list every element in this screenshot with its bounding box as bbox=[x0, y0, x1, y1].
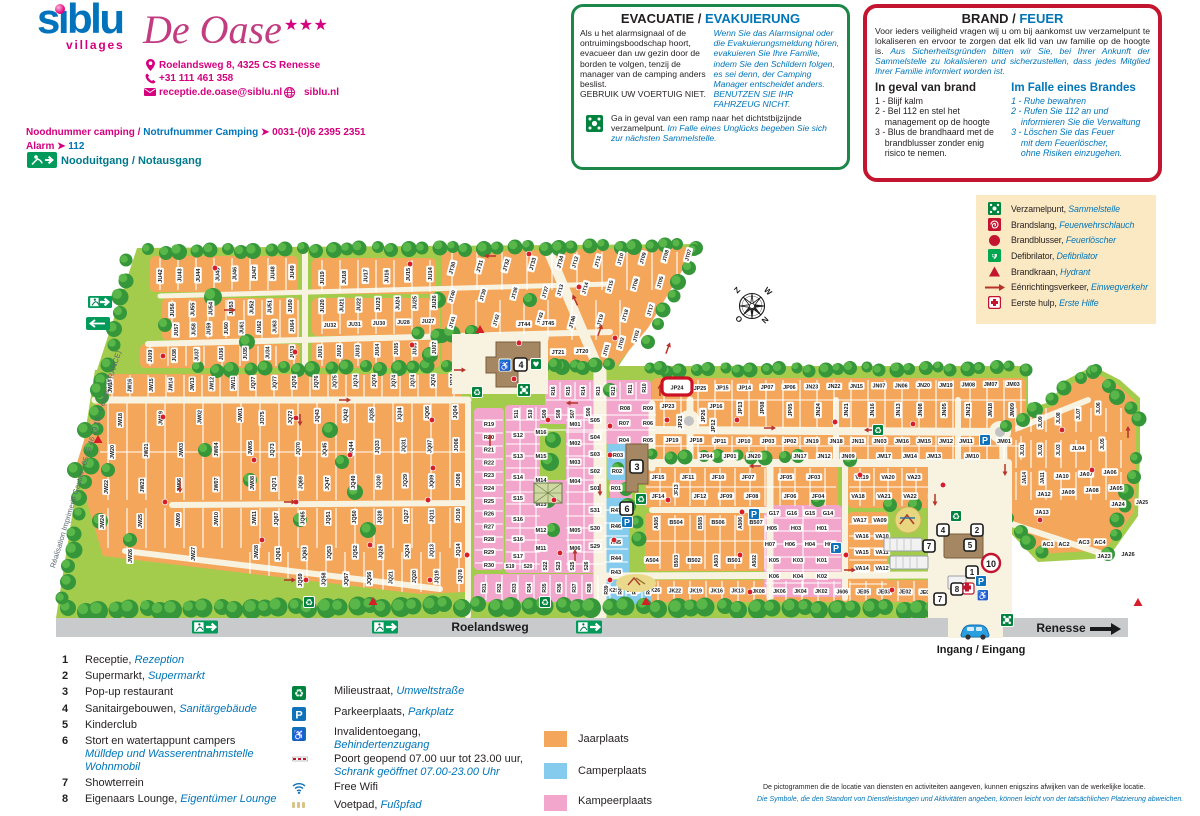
svg-text:JQ49: JQ49 bbox=[351, 476, 357, 489]
svg-text:JF09: JF09 bbox=[720, 494, 733, 500]
svg-text:JN11: JN11 bbox=[851, 439, 864, 445]
svg-text:JN21: JN21 bbox=[966, 403, 972, 416]
svg-text:R19: R19 bbox=[484, 422, 494, 428]
svg-text:JP18: JP18 bbox=[689, 438, 702, 444]
svg-text:♿: ♿ bbox=[499, 360, 510, 371]
svg-text:JW08: JW08 bbox=[250, 476, 256, 490]
svg-text:JQ43: JQ43 bbox=[315, 409, 321, 422]
svg-text:6: 6 bbox=[624, 504, 629, 514]
svg-text:JQ57: JQ57 bbox=[344, 573, 350, 586]
svg-text:10: 10 bbox=[986, 559, 996, 569]
svg-text:JK08: JK08 bbox=[752, 589, 765, 595]
svg-text:JQ47: JQ47 bbox=[325, 477, 331, 490]
svg-text:JA08: JA08 bbox=[1085, 488, 1098, 494]
svg-text:JP02: JP02 bbox=[783, 439, 796, 445]
svg-text:JN19: JN19 bbox=[805, 439, 818, 445]
svg-text:JL01: JL01 bbox=[1020, 444, 1026, 456]
svg-text:JT20: JT20 bbox=[576, 349, 589, 355]
svg-text:JW12: JW12 bbox=[210, 377, 216, 391]
svg-text:JK06: JK06 bbox=[773, 589, 786, 595]
svg-text:JP03: JP03 bbox=[761, 439, 774, 445]
svg-text:G17: G17 bbox=[769, 511, 780, 517]
svg-text:♻: ♻ bbox=[294, 688, 304, 700]
svg-text:JN17: JN17 bbox=[793, 454, 806, 460]
svg-text:B501: B501 bbox=[727, 558, 740, 564]
svg-text:JU20: JU20 bbox=[320, 299, 326, 312]
svg-text:S11: S11 bbox=[514, 409, 520, 418]
svg-text:JU64: JU64 bbox=[290, 320, 296, 333]
svg-text:JU05: JU05 bbox=[394, 343, 400, 356]
svg-text:JM01: JM01 bbox=[997, 439, 1011, 445]
svg-text:R37: R37 bbox=[572, 583, 578, 592]
svg-text:JN12: JN12 bbox=[817, 454, 830, 460]
svg-text:JN05: JN05 bbox=[942, 403, 948, 416]
svg-text:R15: R15 bbox=[566, 386, 572, 395]
svg-text:S03: S03 bbox=[590, 452, 600, 458]
svg-text:JQ35: JQ35 bbox=[370, 408, 376, 421]
svg-text:JU58: JU58 bbox=[191, 323, 197, 336]
svg-text:JU30: JU30 bbox=[373, 321, 386, 327]
svg-text:JK02: JK02 bbox=[815, 589, 828, 595]
svg-text:JQ20: JQ20 bbox=[412, 570, 418, 583]
svg-text:S12: S12 bbox=[513, 433, 523, 439]
svg-text:JW23: JW23 bbox=[140, 478, 146, 492]
svg-text:S10: S10 bbox=[528, 409, 534, 418]
svg-text:JA23: JA23 bbox=[1097, 554, 1110, 560]
svg-text:S19: S19 bbox=[506, 564, 515, 570]
svg-text:JM10: JM10 bbox=[965, 454, 979, 460]
svg-text:JL02: JL02 bbox=[1038, 444, 1044, 456]
svg-text:P: P bbox=[978, 577, 984, 587]
svg-text:JU16: JU16 bbox=[385, 270, 391, 283]
svg-text:JM07: JM07 bbox=[984, 382, 998, 388]
svg-text:JW01: JW01 bbox=[238, 408, 244, 422]
svg-text:H04: H04 bbox=[805, 542, 816, 548]
svg-text:JP10: JP10 bbox=[737, 439, 750, 445]
svg-text:JN24: JN24 bbox=[816, 402, 822, 416]
svg-text:JQ31: JQ31 bbox=[401, 439, 407, 452]
svg-text:R07: R07 bbox=[619, 421, 629, 427]
svg-text:JL09: JL09 bbox=[1038, 416, 1044, 428]
svg-text:♻: ♻ bbox=[305, 597, 313, 607]
svg-text:JQ52: JQ52 bbox=[353, 545, 359, 558]
svg-text:JN03: JN03 bbox=[873, 439, 886, 445]
svg-text:JU34: JU34 bbox=[266, 346, 272, 359]
svg-text:N: N bbox=[760, 315, 771, 326]
svg-text:S29: S29 bbox=[590, 544, 600, 550]
svg-text:B507: B507 bbox=[749, 520, 762, 526]
svg-text:JA09: JA09 bbox=[1061, 490, 1074, 496]
svg-text:JK19: JK19 bbox=[689, 588, 702, 594]
svg-text:JQ05: JQ05 bbox=[425, 406, 431, 419]
svg-text:JQ74: JQ74 bbox=[353, 375, 359, 388]
svg-text:JQ76: JQ76 bbox=[292, 376, 298, 389]
svg-text:R38: R38 bbox=[587, 583, 593, 592]
svg-text:JK04: JK04 bbox=[794, 589, 807, 595]
svg-text:JQ33: JQ33 bbox=[375, 440, 381, 453]
svg-text:JN23: JN23 bbox=[805, 385, 818, 391]
svg-text:B505: B505 bbox=[698, 517, 704, 529]
svg-text:G15: G15 bbox=[805, 511, 816, 517]
svg-text:JW14: JW14 bbox=[169, 378, 175, 392]
svg-text:M15: M15 bbox=[536, 454, 547, 460]
svg-text:JW07: JW07 bbox=[214, 477, 220, 491]
svg-text:R46: R46 bbox=[611, 524, 621, 530]
svg-text:S23: S23 bbox=[556, 561, 562, 570]
svg-text:♻: ♻ bbox=[952, 511, 960, 521]
svg-text:VA18: VA18 bbox=[851, 494, 865, 500]
svg-text:♻: ♻ bbox=[874, 425, 882, 435]
svg-text:JU02: JU02 bbox=[337, 345, 343, 358]
svg-text:4: 4 bbox=[518, 360, 523, 370]
svg-text:R06: R06 bbox=[643, 421, 653, 427]
svg-text:JF08: JF08 bbox=[746, 494, 759, 500]
svg-text:JM17: JM17 bbox=[877, 454, 891, 460]
svg-text:JL05: JL05 bbox=[1100, 438, 1106, 450]
svg-text:JU17: JU17 bbox=[363, 269, 369, 282]
svg-text:JW11: JW11 bbox=[231, 377, 237, 390]
svg-text:JQ28: JQ28 bbox=[378, 510, 384, 523]
svg-text:R27: R27 bbox=[484, 524, 494, 530]
svg-text:JA06: JA06 bbox=[1103, 470, 1116, 476]
svg-text:S15: S15 bbox=[513, 496, 523, 502]
svg-text:A506: A506 bbox=[738, 517, 744, 529]
svg-text:R23: R23 bbox=[484, 473, 494, 479]
svg-text:JQ56: JQ56 bbox=[367, 572, 373, 585]
svg-text:B503: B503 bbox=[674, 555, 680, 567]
svg-text:S25: S25 bbox=[570, 561, 576, 570]
svg-text:R13: R13 bbox=[596, 386, 602, 395]
svg-text:S05: S05 bbox=[590, 418, 600, 424]
svg-text:JW22: JW22 bbox=[104, 480, 110, 494]
svg-text:JP25: JP25 bbox=[694, 386, 707, 392]
svg-text:JA26: JA26 bbox=[1121, 552, 1134, 558]
svg-text:S01: S01 bbox=[590, 486, 600, 492]
svg-text:JF15: JF15 bbox=[652, 475, 665, 481]
svg-text:JN09: JN09 bbox=[841, 454, 854, 460]
svg-text:JP04: JP04 bbox=[699, 454, 713, 460]
svg-text:JO08: JO08 bbox=[456, 473, 462, 486]
svg-text:JQ11: JQ11 bbox=[430, 510, 436, 523]
svg-text:JU07: JU07 bbox=[432, 342, 438, 355]
svg-text:JA07: JA07 bbox=[1079, 472, 1092, 478]
svg-text:JU62: JU62 bbox=[257, 321, 263, 334]
svg-text:JP19: JP19 bbox=[665, 438, 678, 444]
svg-text:JU61: JU61 bbox=[240, 321, 246, 334]
svg-text:JW27: JW27 bbox=[191, 547, 197, 561]
svg-text:R05: R05 bbox=[643, 438, 653, 444]
svg-text:JM18: JM18 bbox=[988, 403, 994, 417]
svg-text:JF06: JF06 bbox=[784, 494, 797, 500]
svg-text:JP14: JP14 bbox=[738, 385, 751, 391]
svg-text:J606: J606 bbox=[837, 589, 849, 595]
svg-text:JQ71: JQ71 bbox=[272, 477, 278, 490]
svg-text:JN13: JN13 bbox=[896, 403, 902, 416]
svg-text:B502: B502 bbox=[687, 558, 700, 564]
svg-text:JN07: JN07 bbox=[872, 384, 885, 390]
svg-text:Z: Z bbox=[732, 285, 742, 295]
svg-text:AC1: AC1 bbox=[1042, 542, 1053, 548]
svg-text:JN20: JN20 bbox=[917, 383, 930, 389]
svg-text:M05: M05 bbox=[570, 528, 581, 534]
svg-text:K04: K04 bbox=[793, 574, 804, 580]
svg-text:R03: R03 bbox=[613, 453, 623, 459]
svg-text:S22: S22 bbox=[543, 561, 549, 570]
svg-text:JW04: JW04 bbox=[214, 442, 220, 456]
svg-text:JW20: JW20 bbox=[110, 445, 116, 459]
svg-text:JU60: JU60 bbox=[224, 322, 230, 335]
svg-text:JU26: JU26 bbox=[432, 295, 438, 308]
svg-text:K06: K06 bbox=[769, 574, 779, 580]
svg-text:JU50: JU50 bbox=[288, 299, 294, 312]
svg-text:P: P bbox=[982, 436, 988, 446]
svg-text:♿: ♿ bbox=[977, 590, 988, 601]
svg-text:JK22: JK22 bbox=[669, 588, 682, 594]
svg-text:S08: S08 bbox=[556, 409, 562, 418]
svg-text:JL06: JL06 bbox=[1096, 402, 1102, 414]
svg-text:JP23: JP23 bbox=[661, 404, 674, 410]
svg-text:JM11: JM11 bbox=[959, 439, 973, 445]
svg-text:AC4: AC4 bbox=[1094, 540, 1106, 546]
svg-text:JA13: JA13 bbox=[1035, 510, 1048, 516]
svg-text:JW09: JW09 bbox=[176, 513, 182, 527]
svg-text:JL08: JL08 bbox=[1056, 412, 1062, 424]
svg-text:M16: M16 bbox=[536, 430, 547, 436]
svg-text:JQ65: JQ65 bbox=[300, 511, 306, 524]
svg-text:R08: R08 bbox=[620, 406, 630, 412]
svg-text:JK16: JK16 bbox=[710, 589, 723, 595]
svg-text:♿: ♿ bbox=[293, 729, 305, 742]
svg-text:JQ42: JQ42 bbox=[343, 409, 349, 422]
svg-text:R12: R12 bbox=[611, 386, 617, 395]
svg-text:JU25: JU25 bbox=[413, 296, 419, 309]
svg-text:W: W bbox=[762, 285, 774, 297]
svg-text:B506: B506 bbox=[711, 520, 724, 526]
svg-text:JU48: JU48 bbox=[271, 266, 277, 279]
svg-text:R16: R16 bbox=[551, 386, 557, 395]
svg-text:B504: B504 bbox=[669, 520, 683, 526]
svg-text:JQ53: JQ53 bbox=[327, 546, 333, 559]
svg-text:JQ69: JQ69 bbox=[298, 476, 304, 489]
svg-text:7: 7 bbox=[927, 542, 932, 551]
svg-text:JQ50: JQ50 bbox=[352, 510, 358, 523]
svg-text:JF05: JF05 bbox=[780, 475, 793, 481]
svg-text:JU57: JU57 bbox=[174, 324, 180, 337]
svg-text:VA23: VA23 bbox=[907, 475, 921, 481]
svg-text:JQ34: JQ34 bbox=[398, 408, 404, 421]
svg-text:JU37: JU37 bbox=[195, 348, 201, 361]
svg-text:JU27: JU27 bbox=[422, 319, 435, 325]
svg-text:R04: R04 bbox=[619, 438, 630, 444]
svg-text:K05: K05 bbox=[769, 558, 779, 564]
svg-text:R30: R30 bbox=[484, 563, 494, 569]
svg-text:JU35: JU35 bbox=[243, 347, 249, 360]
svg-text:S06: S06 bbox=[586, 407, 592, 416]
svg-text:S20: S20 bbox=[524, 564, 533, 570]
svg-text:R09: R09 bbox=[643, 406, 653, 412]
svg-text:JQ76: JQ76 bbox=[314, 376, 320, 389]
svg-text:JU18: JU18 bbox=[342, 271, 348, 284]
svg-text:H03: H03 bbox=[791, 526, 801, 532]
svg-text:VA20: VA20 bbox=[881, 475, 895, 481]
svg-text:JA24: JA24 bbox=[1111, 502, 1125, 508]
svg-text:JN22: JN22 bbox=[828, 384, 841, 390]
svg-text:R26: R26 bbox=[484, 512, 494, 518]
svg-text:S04: S04 bbox=[590, 435, 601, 441]
svg-text:JQ61: JQ61 bbox=[276, 547, 282, 560]
svg-text:JU46: JU46 bbox=[233, 267, 239, 280]
svg-text:R21: R21 bbox=[484, 448, 494, 454]
svg-text:R44: R44 bbox=[611, 556, 622, 562]
svg-text:P: P bbox=[833, 544, 839, 554]
svg-text:JW11: JW11 bbox=[252, 511, 258, 525]
svg-text:JM16: JM16 bbox=[895, 439, 909, 445]
svg-text:JW26: JW26 bbox=[128, 549, 134, 563]
svg-text:H01: H01 bbox=[817, 526, 827, 532]
svg-text:JA25: JA25 bbox=[1136, 500, 1148, 506]
svg-text:S17: S17 bbox=[513, 554, 523, 560]
svg-text:R43: R43 bbox=[611, 570, 621, 576]
svg-text:JQ14: JQ14 bbox=[456, 543, 462, 556]
svg-text:Roelandsweg: Roelandsweg bbox=[451, 620, 528, 634]
svg-text:JW13: JW13 bbox=[190, 377, 196, 391]
svg-text:AC2: AC2 bbox=[1058, 542, 1069, 548]
svg-text:JQ26: JQ26 bbox=[379, 546, 385, 559]
svg-text:JQ30: JQ30 bbox=[377, 475, 383, 488]
svg-text:JQ67: JQ67 bbox=[274, 512, 280, 525]
svg-text:JW10: JW10 bbox=[214, 512, 220, 526]
svg-text:JM19: JM19 bbox=[939, 383, 953, 389]
svg-text:R31: R31 bbox=[482, 583, 488, 592]
svg-text:JW05: JW05 bbox=[248, 441, 254, 455]
svg-text:4: 4 bbox=[941, 526, 946, 535]
svg-text:JF10: JF10 bbox=[712, 475, 725, 481]
svg-text:R11: R11 bbox=[628, 384, 634, 393]
svg-text:JQ04: JQ04 bbox=[453, 405, 459, 418]
svg-text:JA14: JA14 bbox=[1022, 472, 1028, 484]
svg-text:JU22: JU22 bbox=[357, 298, 363, 311]
svg-text:JF07: JF07 bbox=[742, 475, 755, 481]
svg-text:JU23: JU23 bbox=[376, 297, 382, 310]
svg-text:JO75: JO75 bbox=[260, 411, 266, 424]
svg-text:JM13: JM13 bbox=[927, 454, 941, 460]
svg-text:JQ29: JQ29 bbox=[403, 474, 409, 487]
svg-text:JT21: JT21 bbox=[552, 350, 565, 356]
svg-text:K01: K01 bbox=[817, 558, 827, 564]
svg-text:R36: R36 bbox=[557, 583, 563, 592]
svg-text:K03: K03 bbox=[793, 558, 803, 564]
svg-text:JP26: JP26 bbox=[701, 409, 707, 422]
svg-text:G14: G14 bbox=[823, 511, 834, 517]
svg-text:JU42: JU42 bbox=[158, 269, 164, 282]
svg-text:JM09: JM09 bbox=[1010, 403, 1016, 417]
svg-text:JW15: JW15 bbox=[149, 378, 155, 392]
svg-text:7: 7 bbox=[938, 595, 943, 604]
svg-text:JA12: JA12 bbox=[1037, 492, 1050, 498]
svg-text:♻: ♻ bbox=[637, 494, 645, 504]
svg-text:JQ24: JQ24 bbox=[405, 545, 411, 558]
svg-text:JQ77: JQ77 bbox=[251, 376, 257, 389]
svg-text:JF03: JF03 bbox=[808, 475, 821, 481]
svg-text:JF04: JF04 bbox=[812, 494, 826, 500]
svg-text:S14: S14 bbox=[513, 475, 524, 481]
svg-text:JU55: JU55 bbox=[190, 303, 196, 316]
svg-text:JW16: JW16 bbox=[127, 379, 133, 393]
svg-text:JL04: JL04 bbox=[1072, 446, 1086, 452]
svg-text:R22: R22 bbox=[484, 460, 494, 466]
svg-text:S26: S26 bbox=[584, 561, 590, 570]
svg-text:Ingang / Eingang: Ingang / Eingang bbox=[937, 644, 1026, 656]
svg-text:JP13: JP13 bbox=[738, 401, 744, 414]
svg-text:R35: R35 bbox=[542, 583, 548, 592]
svg-text:JP07: JP07 bbox=[761, 385, 774, 391]
svg-text:VA21: VA21 bbox=[877, 494, 891, 500]
svg-text:JQ51: JQ51 bbox=[326, 511, 332, 524]
svg-text:JW28: JW28 bbox=[254, 545, 260, 559]
svg-text:M12: M12 bbox=[536, 528, 547, 534]
svg-text:JU31: JU31 bbox=[348, 322, 361, 328]
svg-text:AC3: AC3 bbox=[1078, 540, 1089, 546]
svg-text:JU49: JU49 bbox=[290, 265, 296, 278]
svg-text:R29: R29 bbox=[484, 550, 494, 556]
svg-text:JF14: JF14 bbox=[652, 494, 666, 500]
svg-text:A502: A502 bbox=[752, 555, 758, 567]
svg-text:VA22: VA22 bbox=[903, 494, 917, 500]
svg-text:R34: R34 bbox=[527, 583, 533, 592]
svg-text:JN15: JN15 bbox=[850, 384, 863, 390]
svg-text:R25: R25 bbox=[484, 499, 494, 505]
svg-text:JU54: JU54 bbox=[209, 301, 215, 315]
svg-text:Renesse: Renesse bbox=[1036, 621, 1086, 635]
svg-text:S13: S13 bbox=[513, 454, 523, 460]
svg-text:JP05: JP05 bbox=[788, 403, 794, 416]
svg-text:JU21: JU21 bbox=[339, 299, 345, 312]
svg-text:JU43: JU43 bbox=[177, 268, 183, 281]
svg-text:JP06: JP06 bbox=[783, 385, 796, 391]
svg-text:K02: K02 bbox=[817, 574, 827, 580]
svg-text:JQ70: JQ70 bbox=[296, 442, 302, 455]
svg-text:JU04: JU04 bbox=[375, 344, 381, 357]
svg-text:JF12: JF12 bbox=[694, 494, 707, 500]
svg-text:1: 1 bbox=[970, 568, 975, 577]
svg-text:R10: R10 bbox=[642, 383, 648, 392]
svg-text:R01: R01 bbox=[611, 486, 621, 492]
svg-text:JP16: JP16 bbox=[709, 404, 722, 410]
svg-text:JW21: JW21 bbox=[144, 443, 150, 457]
svg-text:JU56: JU56 bbox=[170, 303, 176, 316]
svg-text:A505: A505 bbox=[654, 517, 660, 529]
svg-text:JP15: JP15 bbox=[716, 386, 729, 392]
svg-text:JU52: JU52 bbox=[249, 301, 255, 314]
svg-text:JT44: JT44 bbox=[518, 322, 532, 328]
svg-text:R02: R02 bbox=[612, 469, 622, 475]
svg-text:JM12: JM12 bbox=[939, 439, 953, 445]
svg-text:JW24: JW24 bbox=[100, 515, 106, 529]
svg-text:M01: M01 bbox=[570, 422, 581, 428]
svg-text:JU01: JU01 bbox=[318, 346, 324, 359]
svg-text:JN20: JN20 bbox=[747, 454, 760, 460]
svg-text:JQ19: JQ19 bbox=[435, 570, 441, 583]
svg-text:JF11: JF11 bbox=[682, 475, 694, 481]
svg-text:JF13: JF13 bbox=[674, 484, 680, 496]
svg-text:JQ13: JQ13 bbox=[430, 544, 436, 557]
svg-text:JA05: JA05 bbox=[1109, 486, 1122, 492]
svg-text:JU36: JU36 bbox=[219, 348, 225, 361]
svg-text:JU19: JU19 bbox=[320, 271, 326, 284]
svg-text:P: P bbox=[751, 510, 757, 520]
svg-text:JU09: JU09 bbox=[148, 350, 154, 363]
svg-text:O: O bbox=[733, 314, 744, 325]
